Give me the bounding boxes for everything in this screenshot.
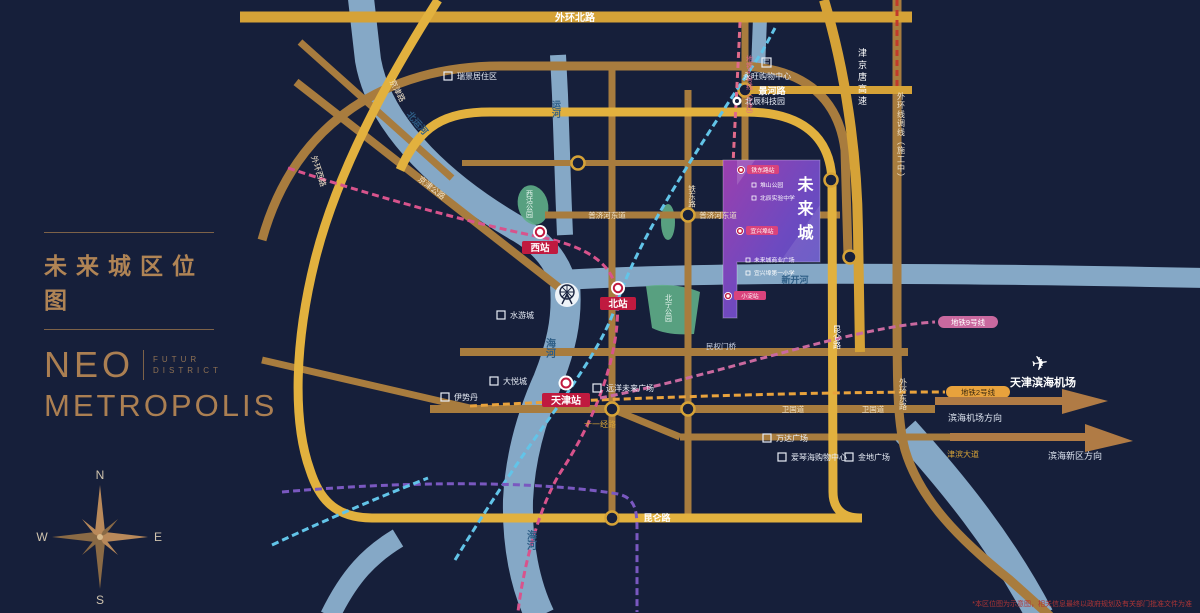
svg-text:铁东路站: 铁东路站: [751, 166, 774, 174]
svg-text:瑞景居住区: 瑞景居住区: [457, 71, 497, 81]
svg-text:大悦城: 大悦城: [503, 376, 527, 386]
label-pujihe-2: 普济河东道: [699, 210, 737, 220]
label-waihuan-west: 外环西路: [309, 154, 328, 188]
poi-ruijing: 瑞景居住区: [444, 71, 497, 81]
future-city-block: 未来城 铁东路站 宜兴埠站 小淀站 堆山公园 北辰实验中学 未来城商业广场 宜兴…: [723, 160, 820, 318]
svg-text:金地广场: 金地广场: [858, 452, 890, 462]
brand-sub-line2: DISTRICT: [153, 366, 222, 375]
svg-text:永旺购物中心: 永旺购物中心: [743, 71, 791, 81]
arrow-to-binhai: [950, 424, 1133, 452]
compass-e: E: [154, 530, 162, 544]
compass-w: W: [36, 530, 48, 544]
label-jinbin-avenue: 津滨大道: [947, 449, 979, 459]
compass: N S W E: [36, 468, 162, 607]
plane-icon: ✈: [1030, 352, 1050, 376]
label-tiedong: 铁东路: [687, 184, 696, 208]
river-southwest: [330, 538, 398, 613]
label-kunlun-south: 昆仑路: [643, 512, 671, 523]
road-changjiang: [262, 360, 470, 408]
label-haihe-2: 海河: [525, 529, 537, 551]
svg-text:未来城商业广场: 未来城商业广场: [754, 256, 795, 264]
label-pujihe-1: 普济河东道: [588, 210, 626, 220]
svg-text:爱琴海购物中心: 爱琴海购物中心: [791, 452, 847, 462]
brand-sub-line1: FUTUR: [153, 355, 200, 364]
svg-text:远洋未来广场: 远洋未来广场: [606, 383, 654, 393]
svg-text:天津站: 天津站: [551, 394, 581, 407]
svg-text:北站: 北站: [608, 298, 628, 310]
location-map-poster: 地铁9号线 地铁2号线 地铁4号线（在建） 未来城 铁东路站 宜兴埠站 小淀站: [0, 0, 1200, 613]
label-haihe-1: 海河: [544, 337, 556, 359]
label-to-binhai: 滨海新区方向: [1048, 450, 1102, 461]
compass-n: N: [96, 468, 105, 482]
label-weiguo-2: 卫国道: [862, 404, 885, 414]
poi-jindi: 金地广场: [845, 452, 890, 462]
brand-divider: [143, 350, 144, 380]
brand-neo: NEO: [44, 344, 134, 386]
label-waihuan-north: 外环北路: [554, 11, 596, 24]
brand-row: NEO FUTUR DISTRICT: [44, 344, 234, 386]
airport-label: 天津滨海机场: [1010, 375, 1076, 389]
svg-text:宜兴埠站: 宜兴埠站: [750, 227, 773, 235]
brand-metropolis: METROPOLIS: [44, 388, 234, 424]
poi-labels: 永旺购物中心 北辰科技园 瑞景居住区 水游城 大悦城 伊势丹 远洋未来广场 万: [441, 58, 890, 462]
divider-mid: [44, 329, 214, 330]
compass-s: S: [96, 593, 104, 607]
metro-line9-label: 地铁9号线: [951, 317, 986, 327]
svg-text:水游城: 水游城: [510, 310, 534, 320]
svg-text:西站: 西站: [530, 242, 550, 254]
label-weiguo-1: 卫国道: [782, 404, 805, 414]
poi-joy-city: 大悦城: [490, 376, 527, 386]
poi-isetan: 伊势丹: [441, 392, 478, 402]
svg-text:万达广场: 万达广场: [776, 433, 808, 443]
svg-text:北辰科技园: 北辰科技园: [745, 96, 785, 106]
label-yunhe: 运河: [551, 100, 562, 119]
label-shiyijing: 十一经路: [584, 419, 616, 429]
metro-line4-label: 地铁4号线（在建）: [746, 54, 754, 118]
metro-line2-label: 地铁2号线: [961, 387, 996, 397]
river-xinkaihe: [562, 274, 1200, 280]
poi-beining-park: 北宁公园: [665, 294, 673, 323]
tianjin-eye-icon: [555, 283, 579, 307]
label-kunlun-east: 昆仑路: [833, 325, 842, 349]
title-panel: 未来城区位图 NEO FUTUR DISTRICT METROPOLIS: [44, 232, 234, 424]
river-north-sliver: [758, 18, 760, 70]
divider-top: [44, 232, 214, 233]
disclaimer-text: *本区位图为示意图，相关信息最终以政府规划及有关部门批准文件为准: [972, 599, 1192, 609]
river-yunhe: [558, 55, 565, 235]
label-jinghe: 景河路: [758, 85, 786, 96]
park-beining: [646, 285, 700, 335]
svg-text:堆山公园: 堆山公园: [760, 181, 783, 189]
svg-text:小淀站: 小淀站: [741, 292, 759, 300]
label-jjtang: 津京唐高速: [857, 48, 867, 108]
airport-group: ✈ 天津滨海机场: [1010, 352, 1076, 389]
svg-text:北辰实验中学: 北辰实验中学: [760, 194, 795, 202]
label-waihuan-east: 外环东路: [899, 377, 908, 410]
poi-shuiyoucheng: 水游城: [497, 310, 534, 320]
svg-text:伊势丹: 伊势丹: [454, 392, 478, 402]
label-waihuan-reroute: 外环线调线（施工中）: [897, 91, 906, 182]
label-xinkaihe: 新开河: [781, 274, 808, 285]
poi-aegean: 爱琴海购物中心: [778, 452, 847, 462]
brand-subtitle: FUTUR DISTRICT: [153, 354, 222, 376]
poi-bc-tech: 北辰科技园: [733, 96, 786, 106]
label-to-airport: 滨海机场方向: [948, 412, 1002, 423]
poi-xigu-park: 西沽公园: [526, 190, 534, 219]
page-title: 未来城区位图: [44, 247, 234, 315]
label-minquanmen: 民权门桥: [706, 341, 736, 351]
